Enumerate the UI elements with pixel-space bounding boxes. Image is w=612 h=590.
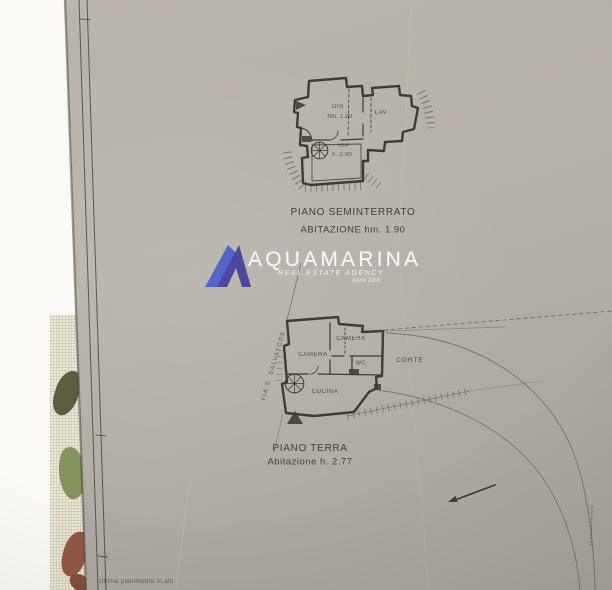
terra-title: PIANO TERRA [272,444,347,454]
room-label-dis: DIS [332,104,344,110]
terra-spiral-stair-icon [285,374,304,393]
plan-drawing-layer [0,0,612,590]
terra-plan-walls [282,317,383,416]
room-label-wc: WC [356,361,366,367]
area-label-corte: CORTE [396,358,424,365]
arrow-annotation [448,485,495,502]
seminterrato-plan-walls [294,78,418,185]
room-label-camera-2: CAMERA [336,336,365,342]
watermark-brand: AQUAMARINA [248,248,421,272]
terra-subtitle: Abitazione h. 2.77 [267,457,352,467]
aquamarina-logo-icon [202,242,254,290]
seminterrato-subtitle: ABITAZIONE hm. 1.90 [301,225,406,235]
room-label-camera-1: CAMERA [298,352,327,358]
seminterrato-entrance-marker [296,101,306,110]
paper-creases [176,0,429,590]
room-label-rip: RIP [338,143,350,149]
room-height-dis: hm. 1.80 [328,114,353,120]
photographed-floorplan-document: DIS hm. 1.80 LAV RIP h. 2.00 PIANO SEMIN… [0,0,612,590]
room-height-rip: h. 2.00 [332,152,352,158]
watermark-tagline: REAL ESTATE AGENCY [278,270,384,277]
seminterrato-spiral-stair-icon [311,142,328,159]
seminterrato-title: PIANO SEMINTERRATO [290,208,415,218]
paper-edge-shadow [65,0,86,590]
room-label-lav: LAV [375,110,388,116]
watermark-since: since 2000 [352,278,381,284]
site-boundary-lines [274,263,612,590]
room-label-cucina: CUCINA [312,389,339,395]
footer-note: Ultima planimetria in atti [99,578,174,585]
